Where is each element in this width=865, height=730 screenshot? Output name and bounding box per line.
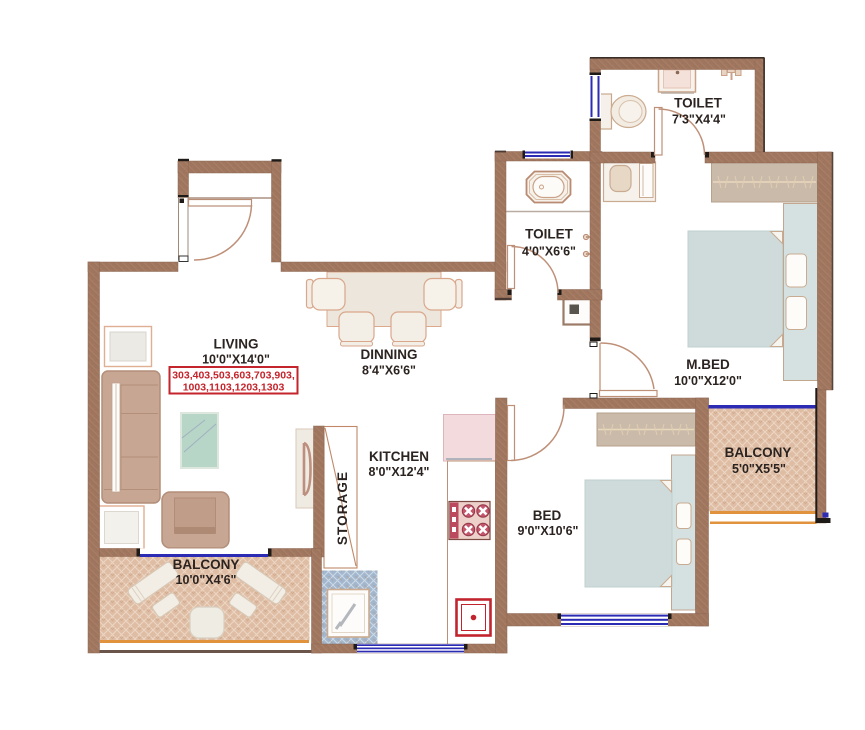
svg-text:LIVING: LIVING <box>213 337 258 352</box>
svg-text:9'0"X10'6": 9'0"X10'6" <box>518 524 579 538</box>
svg-text:TOILET: TOILET <box>674 96 723 111</box>
svg-text:STORAGE: STORAGE <box>335 471 350 545</box>
svg-text:10'0"X4'6": 10'0"X4'6" <box>176 573 237 587</box>
svg-text:5'0"X5'5": 5'0"X5'5" <box>732 462 786 476</box>
svg-text:KITCHEN: KITCHEN <box>369 449 429 464</box>
svg-text:1003,1103,1203,1303: 1003,1103,1203,1303 <box>183 382 285 394</box>
svg-text:10'0"X14'0": 10'0"X14'0" <box>202 353 270 367</box>
svg-text:4'0"X6'6": 4'0"X6'6" <box>522 245 576 259</box>
svg-text:TOILET: TOILET <box>525 227 574 242</box>
svg-text:303,403,503,603,703,903,: 303,403,503,603,703,903, <box>172 370 295 382</box>
svg-text:8'0"X12'4": 8'0"X12'4" <box>369 465 430 479</box>
svg-text:7'3"X4'4": 7'3"X4'4" <box>672 113 726 127</box>
svg-text:10'0"X12'0": 10'0"X12'0" <box>674 374 742 388</box>
svg-text:8'4"X6'6": 8'4"X6'6" <box>362 364 416 378</box>
svg-text:BALCONY: BALCONY <box>173 557 240 572</box>
svg-text:BALCONY: BALCONY <box>725 445 792 460</box>
svg-text:BED: BED <box>533 508 562 523</box>
svg-text:M.BED: M.BED <box>686 357 730 372</box>
svg-text:DINNING: DINNING <box>361 347 418 362</box>
